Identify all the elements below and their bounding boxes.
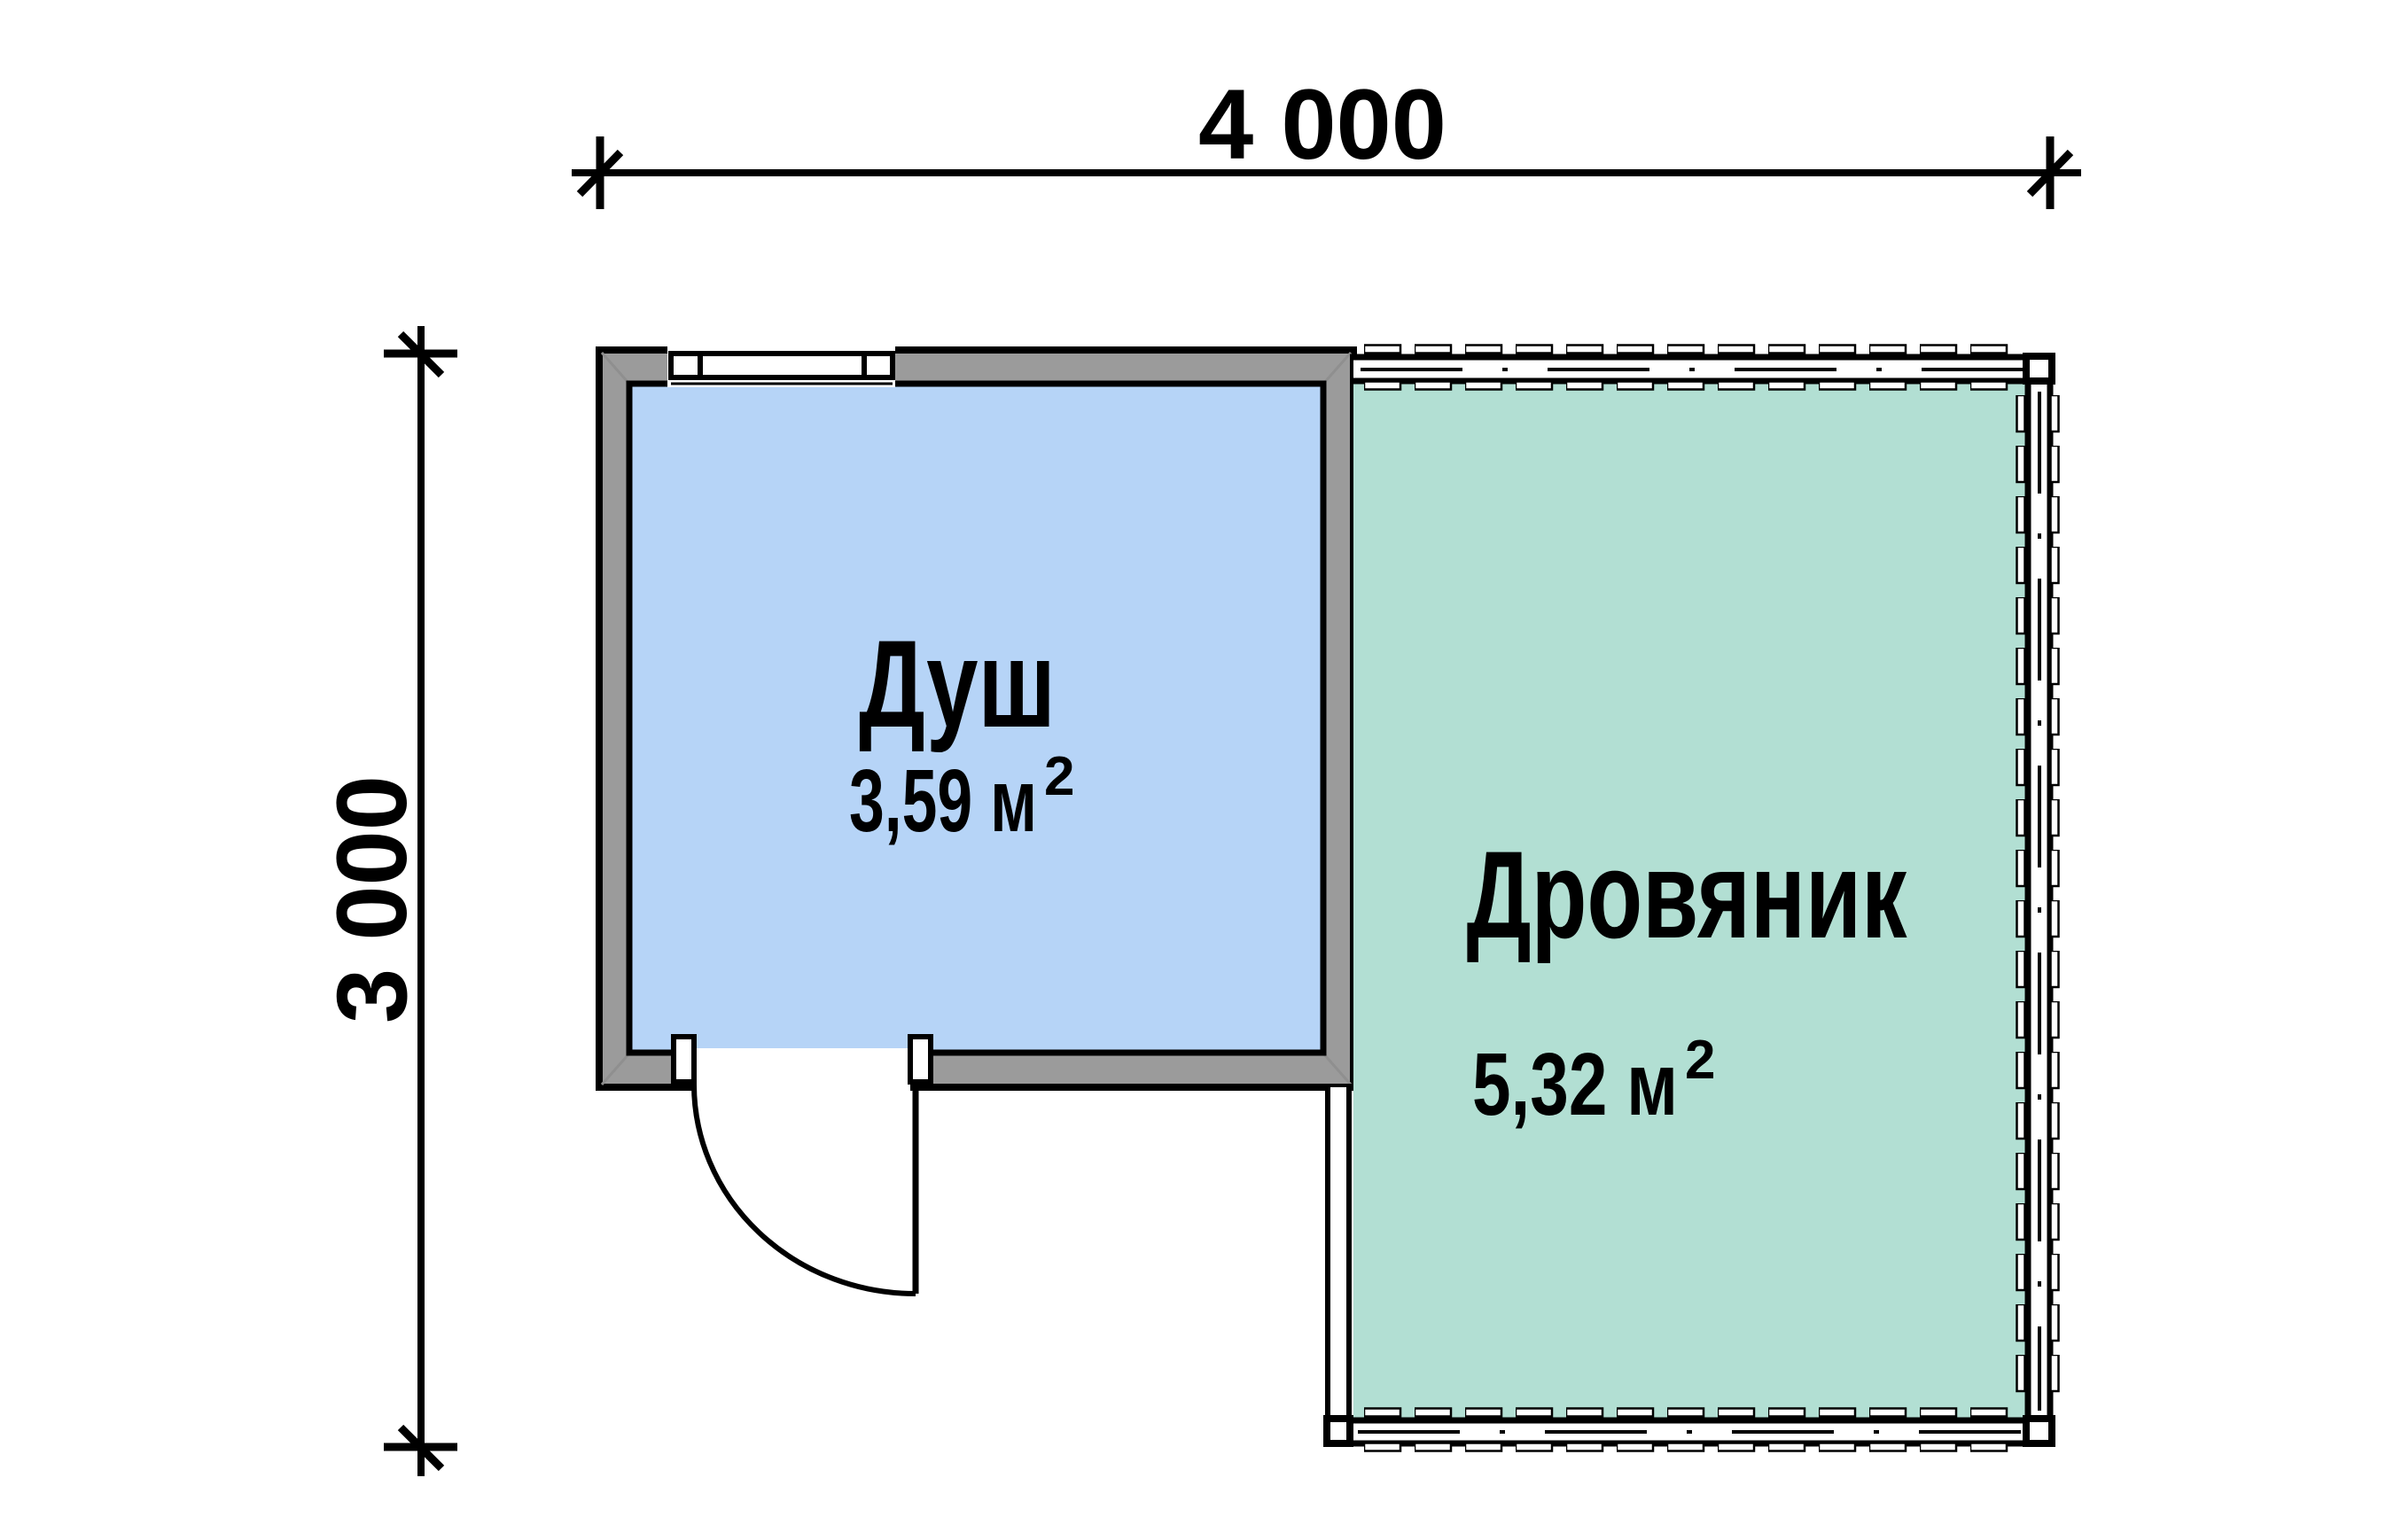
- woodshed-room-area: 5,32 м: [1472, 1035, 1678, 1134]
- door-jamb-left: [674, 1037, 694, 1082]
- shower-room-area: 3,59 м: [849, 751, 1037, 851]
- woodshed-room-name: Дровяник: [1467, 825, 1908, 964]
- wall-slats-row: [1364, 1442, 2021, 1452]
- wall-slats-row: [1364, 1407, 2021, 1418]
- woodshed-left-wall: [1325, 1084, 1352, 1422]
- door-swing-arc: [694, 1085, 916, 1294]
- window: [667, 346, 895, 387]
- dimension-width-label: 4 000: [1198, 69, 1447, 180]
- floor-plan-canvas: Душ 3,59 м 2 Дровяник 5,32 м 2 4 000 3 0…: [0, 0, 2394, 1540]
- woodshed-room-area-superscript: 2: [1685, 1030, 1715, 1091]
- corner-post-bottom-right: [2026, 1419, 2052, 1443]
- shower-room-area-superscript: 2: [1044, 746, 1074, 807]
- wall-slats-column: [2049, 395, 2060, 1405]
- woodshed-top-wall: [1350, 344, 2030, 391]
- wall-slats-row: [1364, 344, 2021, 354]
- door-jamb-right: [910, 1037, 931, 1082]
- woodshed-right-wall: [2016, 357, 2060, 1443]
- door-opening: [694, 1048, 910, 1094]
- floor-plan: Душ 3,59 м 2 Дровяник 5,32 м 2 4 000 3 0…: [0, 0, 2394, 1540]
- corner-post-top-right: [2026, 356, 2052, 381]
- wall-slats-column: [2016, 395, 2026, 1405]
- shower-room-name: Душ: [859, 614, 1056, 753]
- window-frame: [671, 354, 893, 377]
- dimension-height-label: 3 000: [316, 775, 427, 1023]
- corner-post-bottom-left: [1327, 1419, 1350, 1443]
- door: [674, 1037, 931, 1294]
- wall-slats-row: [1364, 380, 2021, 391]
- woodshed-bottom-wall: [1327, 1407, 2030, 1452]
